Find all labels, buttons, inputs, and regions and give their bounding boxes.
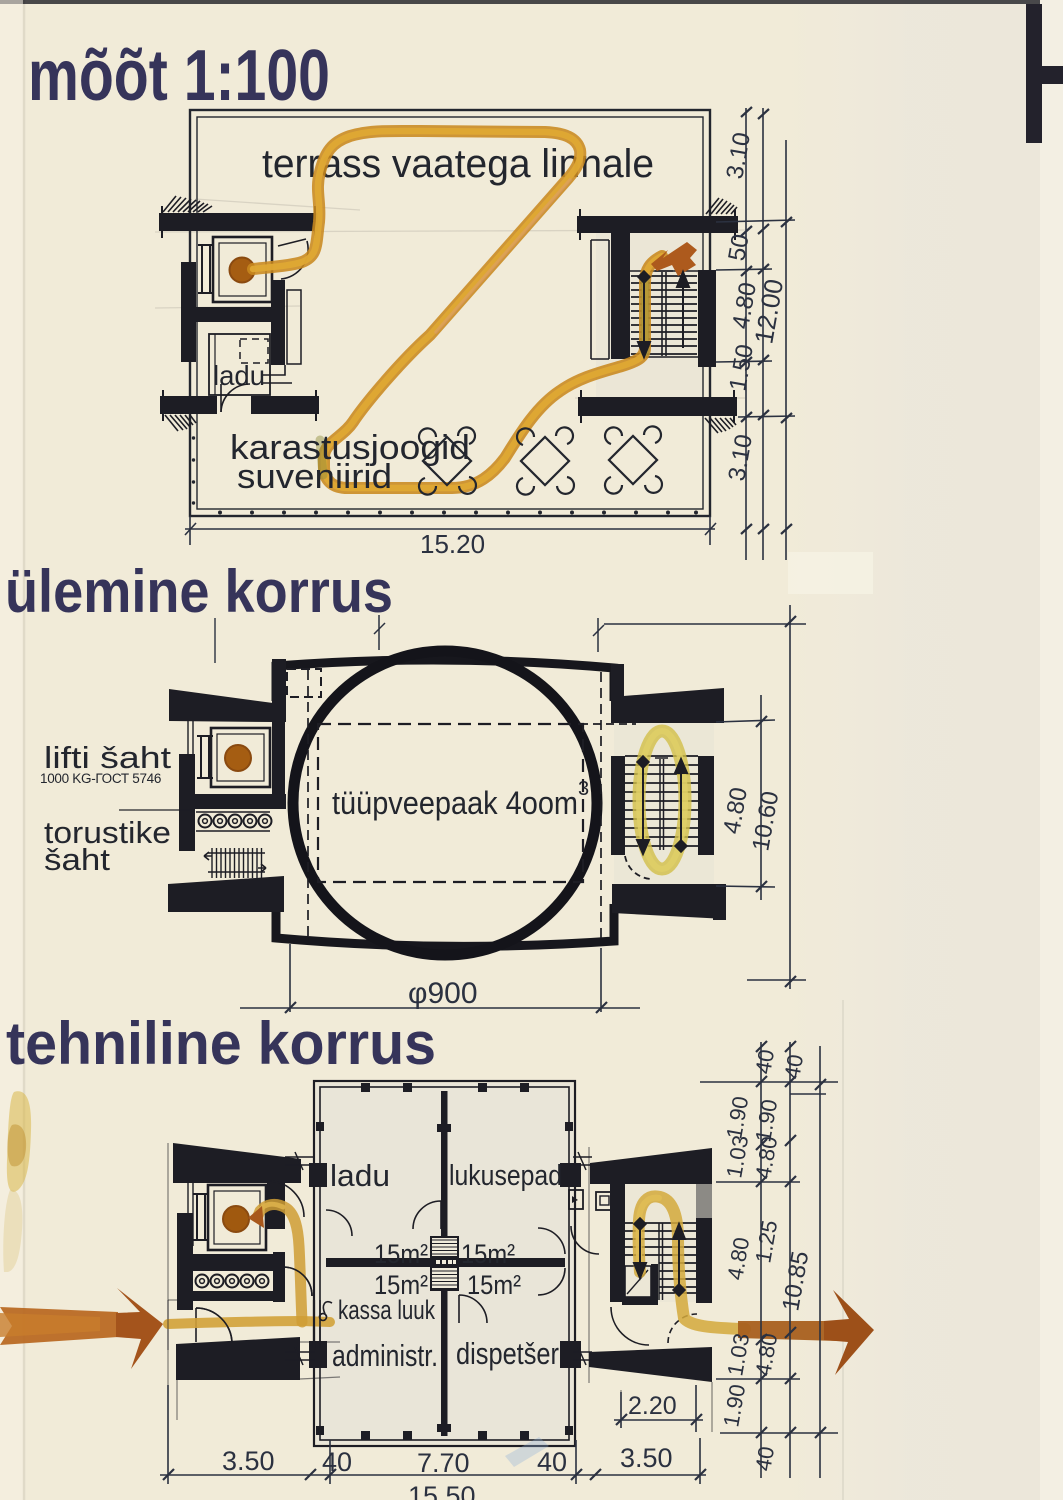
svg-text:kassa luuk: kassa luuk (338, 1295, 435, 1325)
svg-text:ülemine korrus: ülemine korrus (5, 558, 393, 625)
svg-text:3: 3 (578, 778, 589, 800)
svg-text:40: 40 (750, 1047, 779, 1075)
svg-text:3.50: 3.50 (222, 1446, 275, 1476)
svg-text:7.70: 7.70 (417, 1448, 470, 1478)
svg-text:lifti šaht: lifti šaht (44, 740, 171, 775)
svg-text:suveniirid: suveniirid (237, 458, 392, 496)
svg-text:40: 40 (779, 1052, 808, 1080)
svg-text:15m²: 15m² (461, 1239, 515, 1269)
svg-text:dispetšer: dispetšer (456, 1336, 559, 1371)
svg-text:administr.: administr. (332, 1338, 438, 1373)
svg-text:15.50: 15.50 (408, 1481, 476, 1500)
svg-text:tehniline korrus: tehniline korrus (6, 1010, 436, 1077)
svg-text:2.20: 2.20 (628, 1392, 677, 1420)
svg-text:ladu: ladu (330, 1158, 390, 1193)
svg-text:lukusepad: lukusepad (449, 1160, 562, 1192)
svg-text:šaht: šaht (44, 842, 110, 877)
svg-text:mõõt 1:100: mõõt 1:100 (28, 36, 330, 116)
svg-text:1000 KG-ГОСТ 5746: 1000 KG-ГОСТ 5746 (40, 771, 161, 786)
svg-text:50: 50 (723, 232, 754, 263)
svg-text:40: 40 (750, 1444, 779, 1472)
svg-text:15m²: 15m² (467, 1270, 521, 1300)
svg-text:tüüpveepaak 4oom: tüüpveepaak 4oom (332, 785, 578, 821)
svg-text:3.50: 3.50 (620, 1443, 673, 1473)
svg-text:40: 40 (537, 1447, 567, 1477)
svg-text:15.20: 15.20 (420, 529, 485, 559)
svg-text:φ900: φ900 (408, 977, 478, 1010)
svg-text:15m²: 15m² (374, 1239, 428, 1269)
svg-text:40: 40 (322, 1447, 352, 1477)
